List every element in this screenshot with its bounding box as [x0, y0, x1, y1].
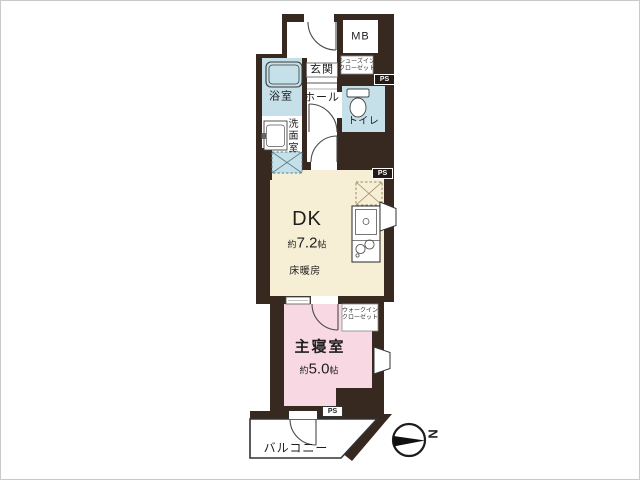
bedroom-label: 主寝室: [294, 340, 345, 355]
bedroom-side-window: [374, 347, 390, 374]
kitchen-counter-icon: [352, 206, 380, 262]
hall-label: ホール: [304, 93, 340, 104]
dk-label: DK: [292, 209, 322, 229]
ps-label-top: PS: [374, 74, 395, 85]
floor-heating-label: 床暖房: [289, 267, 321, 277]
bedroom-door-opening: [311, 296, 338, 304]
shoes-closet-label-line1: シューズイン: [339, 59, 375, 65]
refrigerator-space: [356, 182, 382, 205]
bedroom-area-label: 約5.0帖: [300, 362, 339, 377]
dk-area-prefix: 約: [288, 240, 297, 250]
ps-label-bottom: PS: [322, 406, 343, 417]
compass-north-label: N: [427, 429, 440, 438]
dk-area-value: 7.2: [297, 235, 318, 252]
bedroom-area-value: 5.0: [309, 361, 330, 378]
dk-area-suffix: 帖: [317, 240, 326, 250]
washroom-label: 洗面室: [286, 118, 296, 154]
balcony-label: バルコニー: [264, 442, 329, 454]
wic-label-line2: クローゼット: [342, 315, 378, 321]
bedroom-area-prefix: 約: [300, 366, 309, 376]
wic-label-line1: ウォークイン: [342, 308, 378, 314]
sink-icon: [262, 121, 288, 150]
sliding-door-marker: [286, 297, 310, 304]
wall-patch: [256, 148, 272, 180]
compass-icon: [393, 424, 425, 456]
shoes-closet-label-line2: クローゼット: [339, 66, 375, 72]
ps-label-middle: PS: [372, 168, 393, 179]
entrance-door-opening: [304, 14, 334, 23]
washing-machine-pan: [272, 152, 302, 173]
dk-door-opening: [311, 158, 337, 170]
floorplan: MB 玄関 シューズイン クローゼット 浴室 洗面室 ホール トイレ DK 約7…: [0, 0, 640, 480]
mb-label: MB: [351, 31, 370, 42]
genkan-label: 玄関: [306, 63, 338, 78]
bedroom-area-suffix: 帖: [329, 366, 338, 376]
toilet-label: トイレ: [348, 117, 380, 127]
bath-label: 浴室: [269, 92, 293, 103]
balcony-door-opening: [289, 411, 317, 419]
dk-area-label: 約7.2帖: [288, 236, 327, 251]
